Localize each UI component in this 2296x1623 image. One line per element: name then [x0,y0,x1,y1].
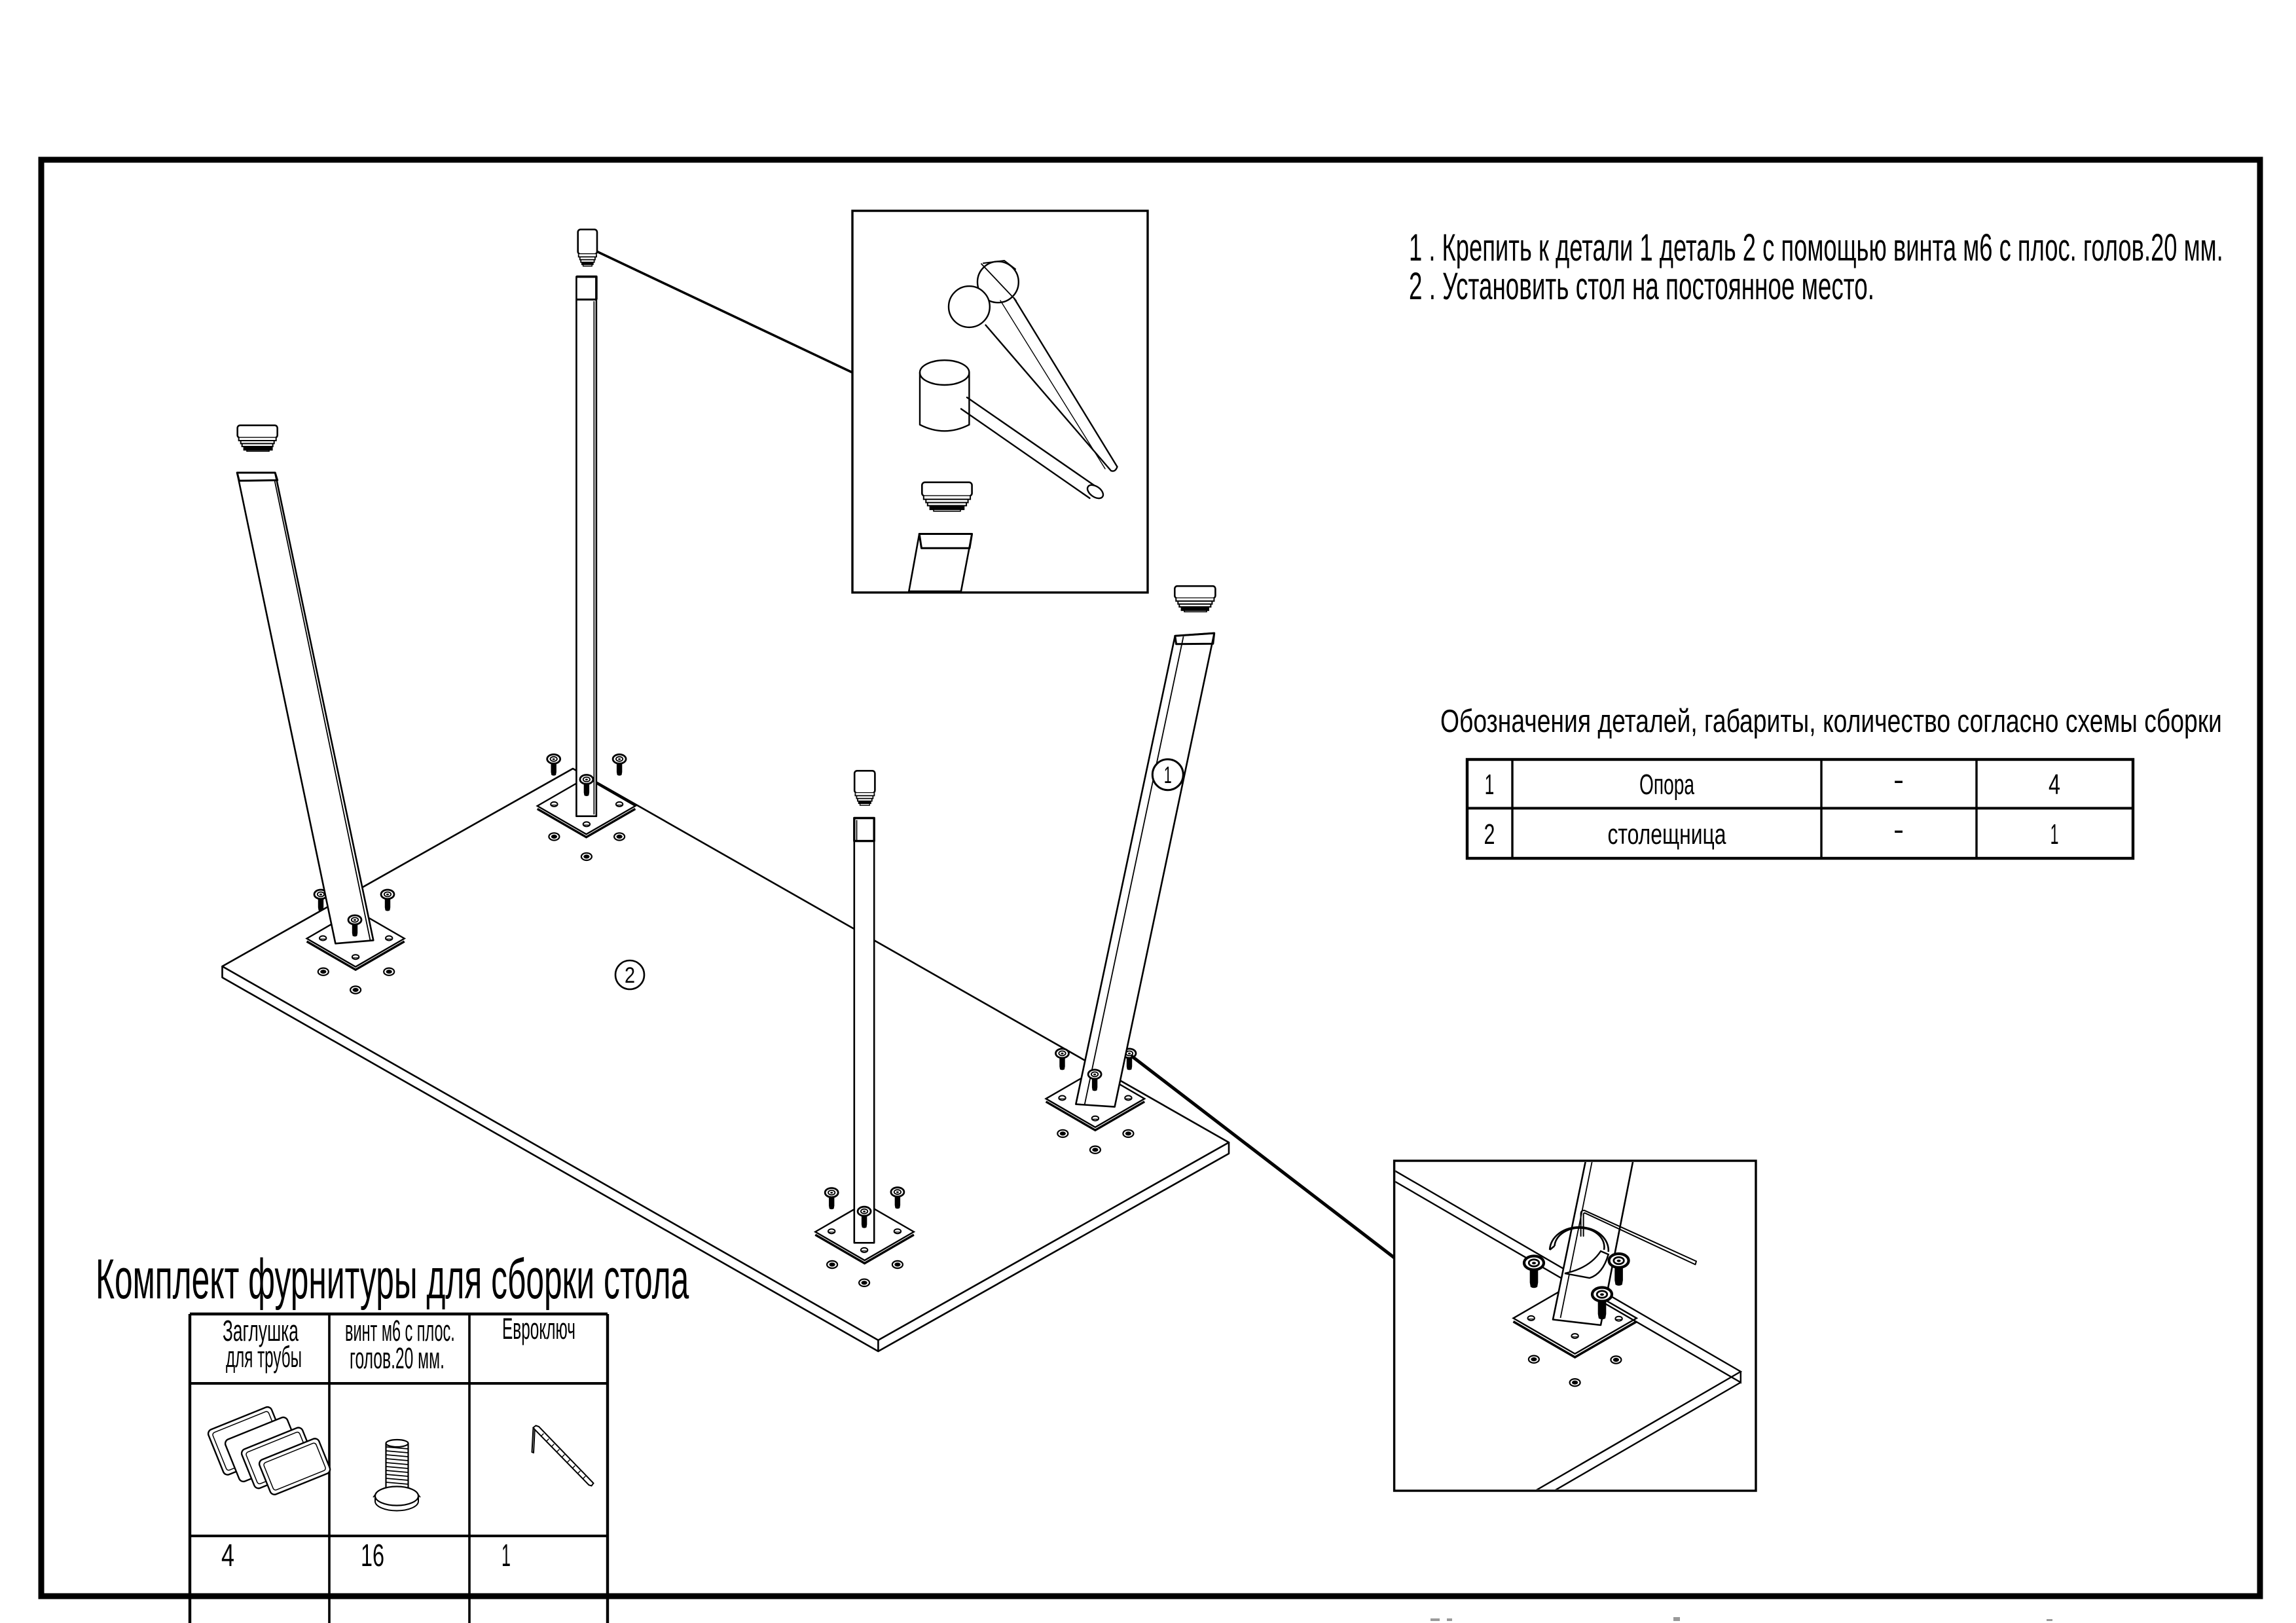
svg-text:4: 4 [221,1538,234,1573]
svg-text:-: - [1893,763,1904,795]
svg-text:2 . Установить стол на постоян: 2 . Установить стол на постоянное место. [1409,266,1874,308]
svg-text:голов.20 мм.: голов.20 мм. [350,1341,445,1375]
svg-text:1: 1 [501,1538,511,1573]
svg-text:2: 2 [625,962,635,988]
svg-text:-: - [1893,813,1904,845]
svg-text:1: 1 [1164,762,1172,788]
svg-text:1: 1 [1485,768,1495,801]
svg-text:Опора: Опора [1639,769,1694,801]
svg-text:Комплект фурнитуры для сборки: Комплект фурнитуры для сборки стола [96,1247,689,1311]
svg-text:Обозначения деталей, габариты,: Обозначения деталей, габариты, количеств… [1440,704,2222,739]
svg-text:2: 2 [1484,819,1495,851]
svg-text:для трубы: для трубы [226,1340,302,1374]
svg-text:столещница: столещница [1607,818,1726,850]
svg-text:Евроключ: Евроключ [502,1312,575,1345]
svg-text:1 . Крепить к детали 1 деталь: 1 . Крепить к детали 1 деталь 2 с помощь… [1409,227,2223,269]
svg-text:1: 1 [2050,818,2059,850]
svg-text:4: 4 [2049,769,2060,801]
svg-text:16: 16 [361,1538,384,1573]
